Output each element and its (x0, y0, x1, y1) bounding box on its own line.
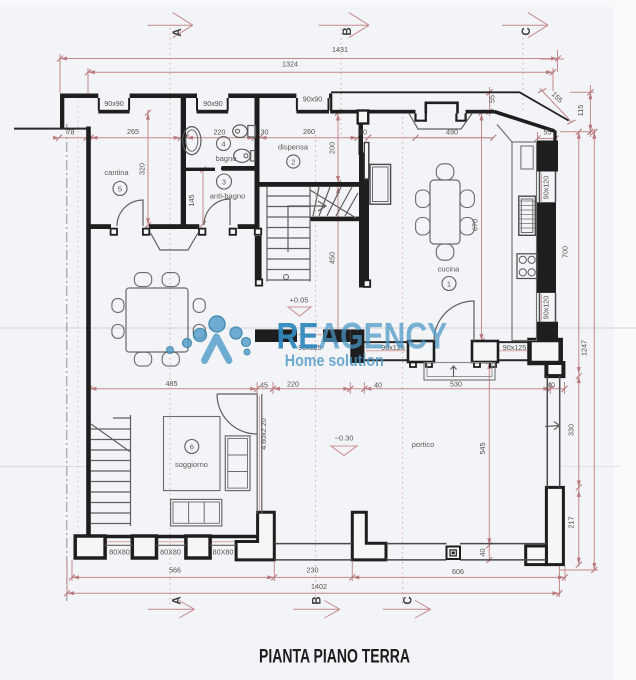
svg-text:330: 330 (567, 424, 576, 436)
svg-text:4: 4 (221, 140, 225, 149)
svg-text:1: 1 (447, 280, 451, 289)
svg-text:78: 78 (67, 128, 75, 137)
svg-text:3: 3 (222, 178, 226, 187)
svg-text:+0.05: +0.05 (290, 296, 309, 305)
svg-text:−0.30: −0.30 (335, 434, 354, 443)
svg-text:80X80: 80X80 (213, 548, 234, 557)
svg-text:5: 5 (118, 185, 122, 194)
svg-text:200: 200 (328, 142, 337, 154)
svg-text:606: 606 (452, 567, 464, 576)
svg-text:cantina: cantina (104, 168, 129, 177)
svg-text:115: 115 (576, 105, 585, 116)
svg-text:80X80: 80X80 (160, 548, 181, 557)
svg-text:6: 6 (190, 443, 194, 452)
svg-text:bagno: bagno (216, 154, 237, 163)
svg-text:700: 700 (561, 246, 570, 258)
svg-text:220: 220 (287, 380, 299, 389)
svg-text:B: B (342, 27, 354, 35)
svg-text:PIANTA PIANO TERRA: PIANTA PIANO TERRA (259, 647, 410, 668)
svg-text:265: 265 (127, 127, 139, 136)
svg-text:40: 40 (547, 381, 555, 390)
svg-text:C: C (521, 27, 533, 35)
svg-text:40: 40 (374, 381, 382, 390)
svg-text:530: 530 (450, 380, 462, 389)
svg-text:260: 260 (303, 127, 315, 136)
svg-text:1431: 1431 (332, 45, 348, 54)
svg-text:45: 45 (260, 381, 268, 390)
svg-text:230: 230 (307, 566, 319, 575)
svg-text:C: C (402, 596, 414, 604)
svg-text:4.60x2.20: 4.60x2.20 (259, 418, 268, 450)
svg-text:55: 55 (488, 95, 497, 103)
svg-text:Home solution: Home solution (285, 351, 384, 370)
svg-text:90x90: 90x90 (104, 99, 124, 108)
svg-text:2: 2 (291, 158, 295, 167)
svg-text:30: 30 (261, 128, 269, 137)
svg-text:545: 545 (478, 443, 487, 455)
svg-text:145: 145 (187, 195, 196, 207)
svg-text:566: 566 (169, 566, 181, 575)
svg-text:B: B (311, 596, 323, 604)
svg-text:670: 670 (471, 219, 480, 231)
svg-text:90x90: 90x90 (203, 99, 223, 108)
svg-text:320: 320 (138, 163, 147, 175)
svg-text:anti-bagno: anti-bagno (210, 192, 245, 201)
svg-text:220: 220 (214, 128, 226, 137)
svg-text:1402: 1402 (311, 582, 327, 591)
svg-text:490: 490 (446, 128, 458, 137)
svg-text:soggiorno: soggiorno (175, 460, 208, 469)
svg-text:90x90: 90x90 (303, 95, 323, 104)
svg-text:90x120: 90x120 (542, 176, 551, 200)
svg-text:485: 485 (166, 379, 178, 388)
svg-text:30: 30 (359, 128, 367, 137)
svg-text:217: 217 (567, 517, 576, 529)
svg-text:1247: 1247 (580, 340, 589, 356)
svg-text:A: A (172, 596, 184, 604)
svg-text:cucina: cucina (438, 265, 461, 274)
svg-text:dispensa: dispensa (278, 143, 309, 152)
svg-text:80X80: 80X80 (109, 548, 130, 557)
svg-text:90x120: 90x120 (542, 296, 551, 320)
svg-text:A: A (172, 28, 184, 36)
svg-text:portico: portico (412, 440, 435, 449)
svg-text:40: 40 (478, 549, 487, 557)
svg-text:55: 55 (544, 128, 552, 137)
svg-text:450: 450 (328, 252, 337, 264)
svg-text:1324: 1324 (282, 60, 298, 69)
svg-text:90x125: 90x125 (503, 343, 527, 352)
